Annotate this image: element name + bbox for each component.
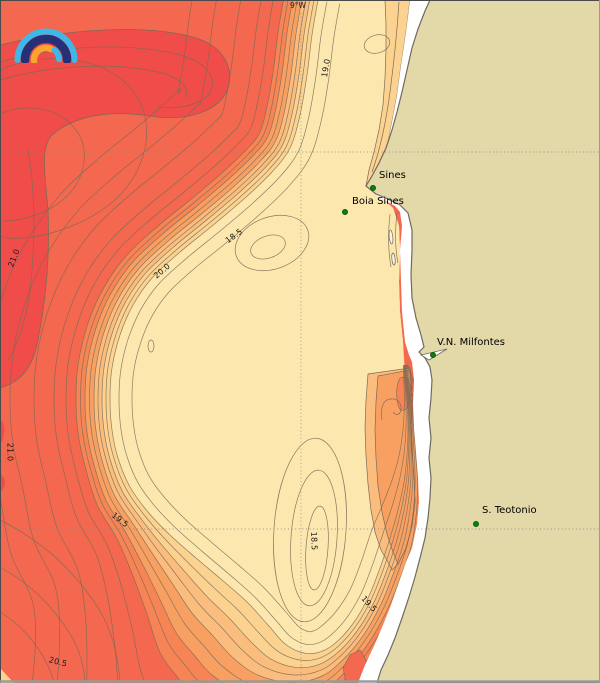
map-canvas xyxy=(0,0,600,683)
agency-logo xyxy=(10,13,86,63)
logo-arc-inner xyxy=(54,50,59,59)
logo-arc-orange xyxy=(34,48,51,61)
sst-contour-map: 9°W 19.018.520.021.021.019.518.519.520.5… xyxy=(0,0,600,683)
